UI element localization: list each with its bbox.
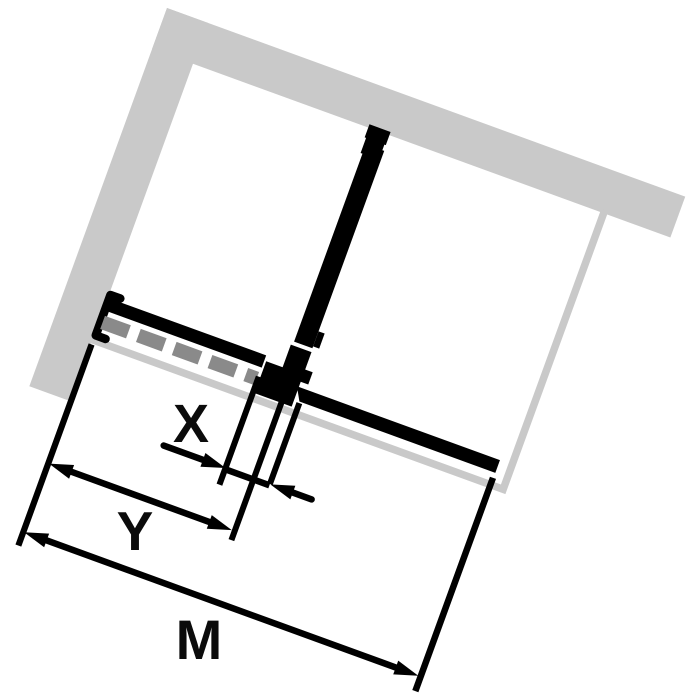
- svg-text:M: M: [176, 608, 223, 671]
- svg-text:Y: Y: [117, 500, 154, 562]
- svg-text:X: X: [173, 394, 209, 454]
